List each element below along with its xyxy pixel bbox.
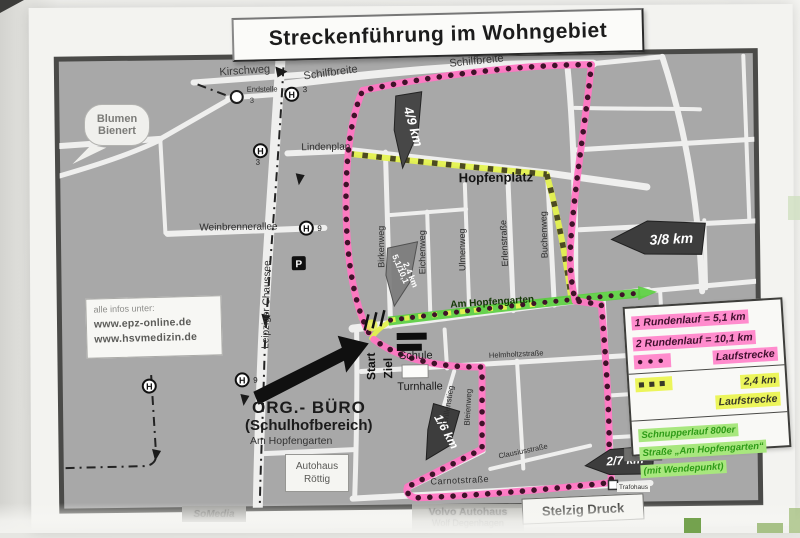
turnhalle-building: [402, 365, 428, 378]
place-label-hopfenplatz: Hopfenplatz: [459, 170, 534, 184]
tram-line-number: 3: [303, 85, 308, 94]
legend-2-4km-text: 2,4 km: [740, 373, 779, 389]
org-buero-address: Am Hopfengarten: [250, 436, 332, 447]
start-label: Start: [365, 341, 378, 391]
info-url-2: www.hsvmedizin.de: [94, 330, 214, 345]
tram-stop-h: H: [239, 375, 246, 385]
turnhalle-label: Turnhalle: [397, 381, 443, 393]
tram-line-number: 3: [255, 158, 260, 167]
tram-stop-h: H: [303, 224, 310, 234]
legend-laufstrecke-text: Laufstrecke: [712, 347, 778, 365]
photo-bottom-blur: [0, 503, 800, 533]
ziel-label: Ziel: [382, 343, 395, 393]
street-label-weinbrennerallee: Weinbrennerallee: [199, 222, 277, 233]
street-label-ulmenweg: Ulmenweg: [458, 215, 468, 285]
tram-stop-h: H: [257, 146, 264, 156]
tram-stop-h: H: [288, 90, 295, 100]
photo-green-patch: [684, 518, 701, 533]
legend-laufstrecke2-text: Laufstrecke: [715, 392, 781, 410]
photo-green-patch: [789, 508, 800, 533]
tram-line-number: 9: [253, 376, 258, 385]
photo-background: P Endstelle 3 H 3 H 3 H 9: [0, 0, 800, 533]
parking-icon: P: [295, 259, 302, 270]
km-marker-3-8: 3/8 km: [649, 230, 693, 248]
street-label-lindenplan: Lindenplan: [301, 143, 350, 154]
legend-box: 1 Rundenlauf = 5,1 km 2 Rundenlauf = 10,…: [623, 297, 792, 456]
endstelle-label: Endstelle: [247, 84, 278, 93]
legend-row-5: Schnupperlauf 800er Straße „Am Hopfengar…: [638, 417, 785, 480]
photo-green-patch: [757, 523, 783, 533]
legend-schnupperlauf-line1: Schnupperlauf 800er: [638, 423, 739, 442]
blumen-line1: Blumen: [97, 113, 137, 125]
info-box: alle infos unter: www.epz-online.de www.…: [85, 295, 223, 359]
blumen-line2: Bienert: [98, 125, 136, 137]
street-ne-2: [575, 106, 700, 111]
legend-round1-text: 1 Rundenlauf = 5,1 km: [631, 309, 749, 330]
endstelle-line-number: 3: [250, 96, 254, 105]
tram-line-number: 9: [317, 224, 322, 233]
map-title-text: Streckenführung im Wohngebiet: [269, 19, 608, 51]
photo-edge-patch: [788, 196, 800, 220]
org-buero-subtitle: (Schulhofbereich): [245, 418, 373, 433]
blumen-bienert-bubble: Blumen Bienert: [84, 104, 150, 146]
legend-row-4: ■■■ 2,4 km Laufstrecke: [635, 370, 781, 417]
org-buero-title: ORG.- BÜRO: [252, 399, 366, 416]
tram-stop-h: H: [146, 382, 153, 392]
legend-dots-icon: ●●●: [634, 353, 672, 369]
trafohaus-label: Trafohaus: [617, 483, 650, 492]
info-url-1: www.epz-online.de: [94, 315, 214, 330]
street-label-birkenweg: Birkenweg: [377, 212, 387, 282]
legend-yellow-lines: 2,4 km Laufstrecke: [714, 370, 781, 412]
endstelle-icon: [231, 91, 243, 103]
street-label-eichenweg: Eichenweg: [418, 217, 428, 287]
autohaus-line1: Autohaus: [296, 460, 338, 473]
schule-building: [397, 333, 427, 340]
info-intro: alle infos unter:: [93, 301, 213, 314]
legend-schnupperlauf-line2: Straße „Am Hopfengarten“: [639, 439, 767, 460]
autohaus-roettig-box: Autohaus Röttig: [285, 454, 349, 492]
legend-squares-icon: ■■■: [635, 376, 673, 392]
parking-sign: P: [292, 256, 306, 270]
autohaus-line2: Röttig: [304, 473, 330, 486]
schule-label: Schule: [399, 351, 433, 362]
